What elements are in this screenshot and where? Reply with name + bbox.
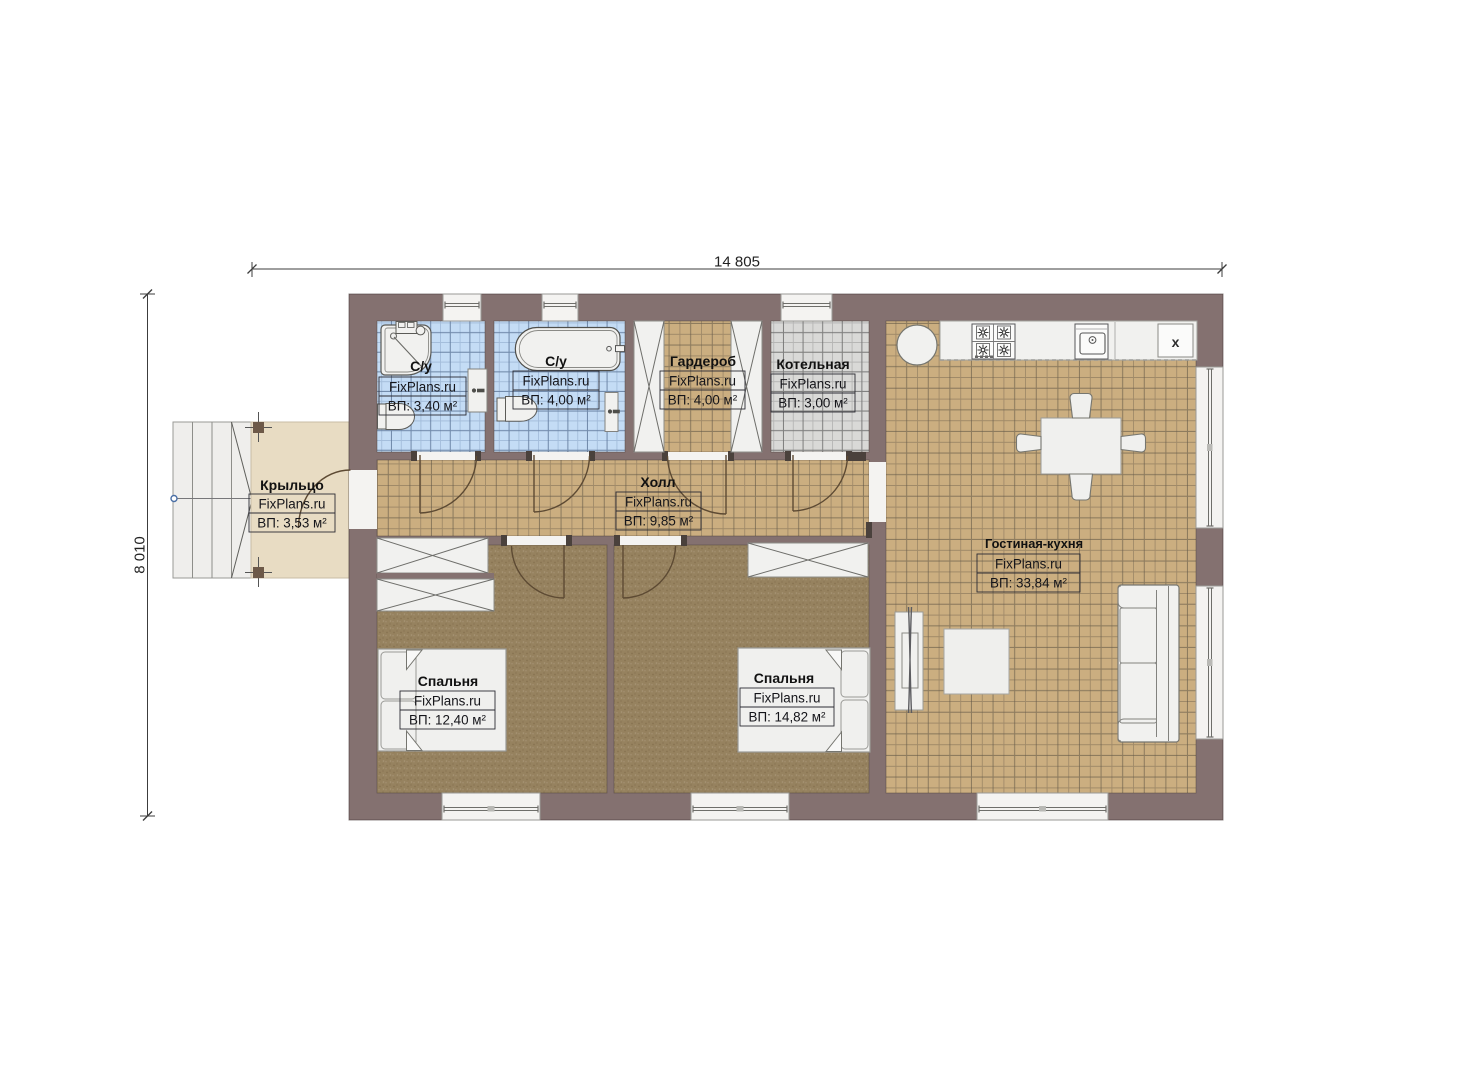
svg-text:ВП: 3,00 м²: ВП: 3,00 м²: [778, 396, 848, 411]
svg-text:Гардероб: Гардероб: [670, 353, 737, 369]
svg-text:ВП: 9,85 м²: ВП: 9,85 м²: [624, 514, 694, 529]
svg-text:ВП: 4,00 м²: ВП: 4,00 м²: [521, 393, 591, 408]
svg-text:14 805: 14 805: [714, 254, 760, 271]
svg-text:FixPlans.ru: FixPlans.ru: [780, 377, 847, 392]
svg-text:С/у: С/у: [545, 353, 567, 369]
svg-text:ВП: 12,40 м²: ВП: 12,40 м²: [409, 713, 486, 728]
svg-text:Гостиная-кухня: Гостиная-кухня: [985, 536, 1083, 551]
svg-text:Спальня: Спальня: [418, 673, 478, 689]
svg-text:8 010: 8 010: [132, 536, 149, 574]
svg-text:Котельная: Котельная: [776, 356, 849, 372]
svg-text:FixPlans.ru: FixPlans.ru: [669, 374, 736, 389]
svg-text:Крыльцо: Крыльцо: [260, 477, 324, 493]
svg-text:ВП: 14,82 м²: ВП: 14,82 м²: [749, 710, 826, 725]
svg-text:FixPlans.ru: FixPlans.ru: [523, 374, 590, 389]
svg-text:FixPlans.ru: FixPlans.ru: [995, 557, 1062, 572]
svg-text:ВП: 33,84 м²: ВП: 33,84 м²: [990, 576, 1067, 591]
svg-text:x: x: [1172, 334, 1180, 350]
svg-text:Холл: Холл: [640, 474, 675, 490]
svg-text:FixPlans.ru: FixPlans.ru: [389, 380, 456, 395]
svg-text:ВП: 3,53 м²: ВП: 3,53 м²: [257, 516, 327, 531]
svg-text:С/у: С/у: [410, 358, 432, 374]
svg-text:FixPlans.ru: FixPlans.ru: [414, 694, 481, 709]
svg-text:FixPlans.ru: FixPlans.ru: [625, 495, 692, 510]
svg-text:Спальня: Спальня: [754, 670, 814, 686]
svg-text:FixPlans.ru: FixPlans.ru: [259, 497, 326, 512]
svg-text:ВП: 4,00 м²: ВП: 4,00 м²: [668, 393, 738, 408]
svg-text:ВП: 3,40 м²: ВП: 3,40 м²: [388, 399, 458, 414]
svg-text:FixPlans.ru: FixPlans.ru: [754, 691, 821, 706]
